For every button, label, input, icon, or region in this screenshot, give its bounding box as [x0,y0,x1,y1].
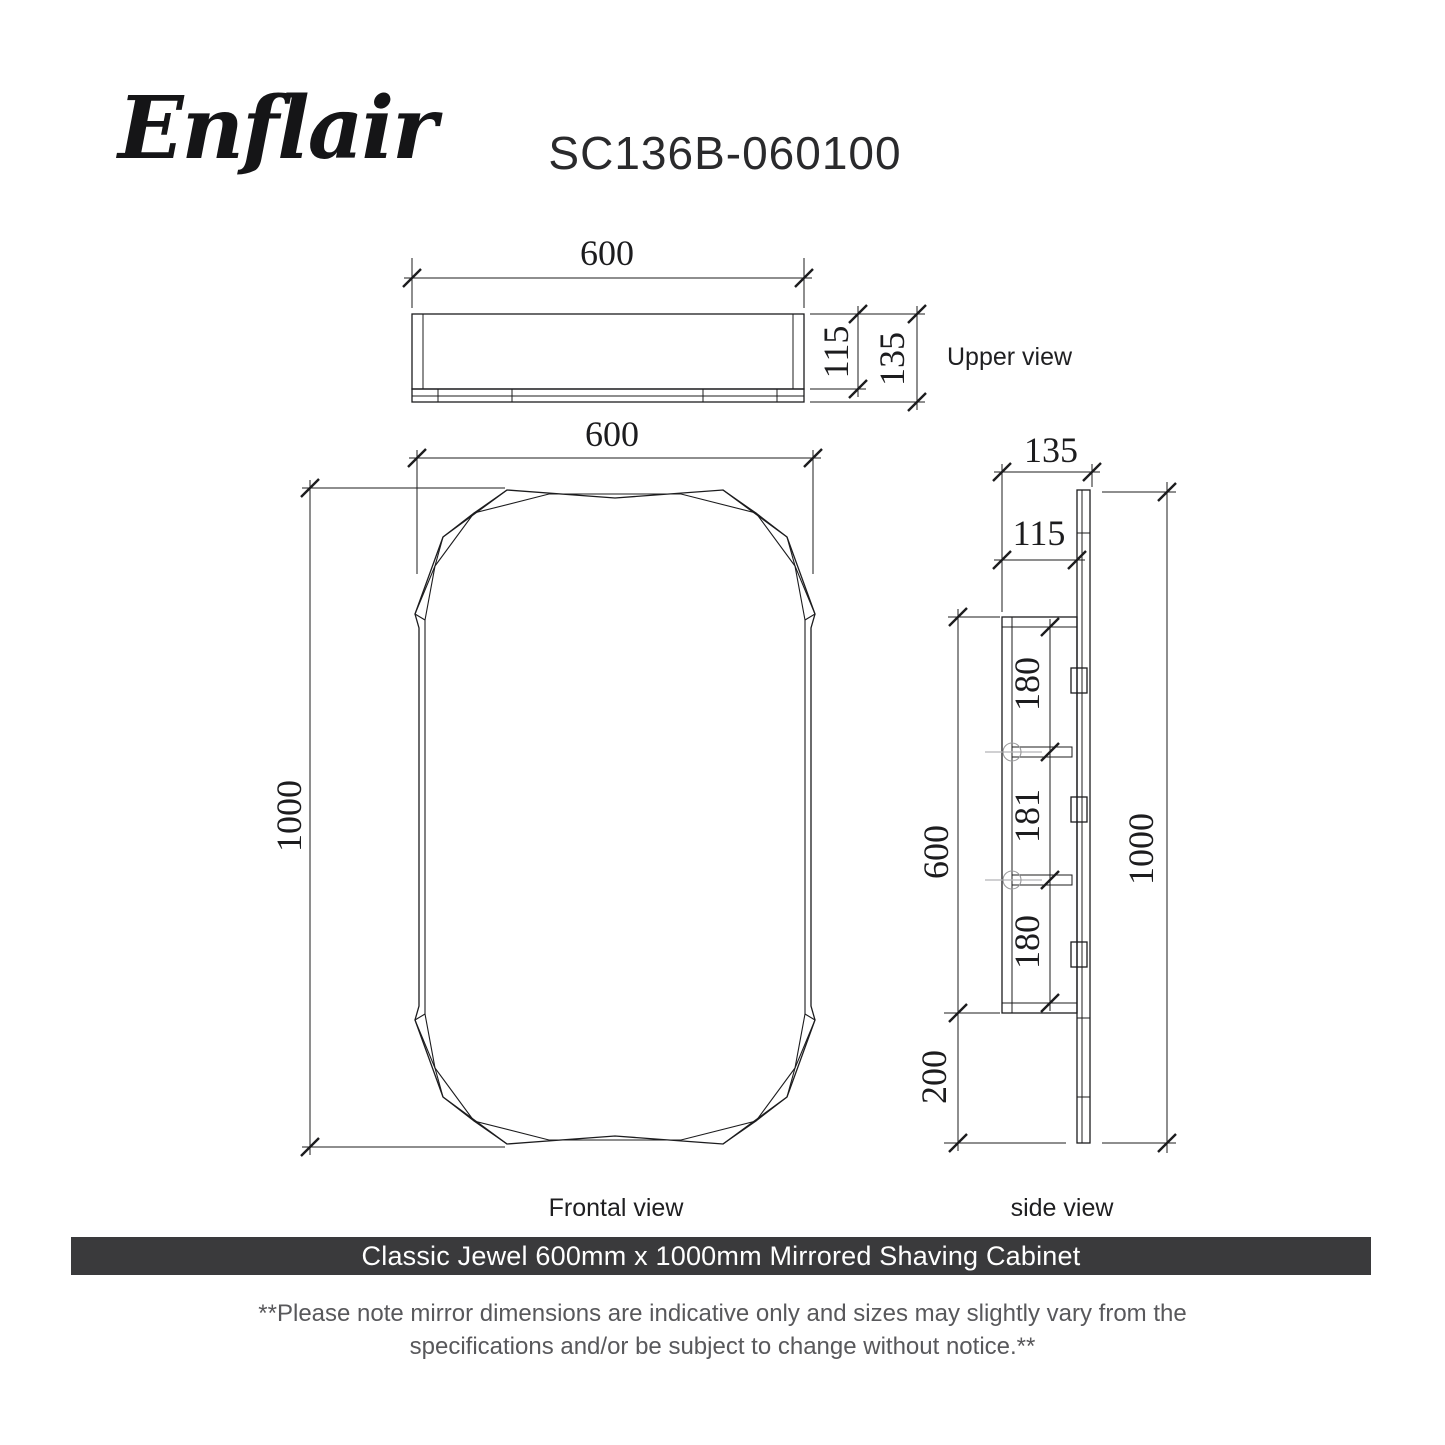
side-shelf-top-dimension: 180 [1007,657,1047,711]
upper-view-drawing: 600 115 135 [403,233,926,411]
side-body-height-dimension: 600 [916,825,956,879]
jewel-mirror-outline [415,490,815,1144]
mirror-clip [1071,797,1087,822]
technical-drawing: 600 115 135 [0,0,1445,1445]
disclaimer-note: **Please note mirror dimensions are indi… [60,1297,1385,1363]
upper-view-label: Upper view [947,343,1072,372]
upper-body-depth-dimension: 115 [816,326,856,379]
side-body-depth-dimension: 115 [1013,513,1066,553]
upper-mirror-strip [412,389,804,402]
side-shelf-bottom-dimension: 180 [1007,915,1047,969]
side-total-depth-dimension: 135 [1024,430,1078,470]
frontal-height-dimension: 1000 [269,780,309,852]
product-title: Classic Jewel 600mm x 1000mm Mirrored Sh… [362,1241,1081,1272]
upper-cabinet-outline [412,314,804,389]
frontal-view-drawing: 600 1000 [269,414,822,1156]
frontal-view-label: Frontal view [549,1194,684,1223]
upper-width-dimension: 600 [580,233,634,273]
side-dimension-ticks [949,463,1176,1152]
product-title-banner: Classic Jewel 600mm x 1000mm Mirrored Sh… [71,1237,1371,1275]
side-view-drawing: 135 115 180 181 180 600 200 1000 [914,430,1176,1153]
frontal-dimension-ticks [301,449,822,1156]
upper-total-depth-dimension: 135 [872,332,912,386]
disclaimer-line-1: **Please note mirror dimensions are indi… [60,1297,1385,1330]
side-view-label: side view [1011,1194,1114,1223]
product-spec-sheet: Enflair SC136B-060100 [0,0,1445,1445]
frontal-width-dimension: 600 [585,414,639,454]
side-shelf-middle-dimension: 181 [1007,789,1047,843]
mirror-clip [1071,668,1087,693]
side-bottom-offset-dimension: 200 [914,1050,954,1104]
disclaimer-line-2: specifications and/or be subject to chan… [60,1330,1385,1363]
frontal-dimension-lines [302,450,821,1155]
mirror-clip [1071,942,1087,967]
side-dimension-lines [944,464,1176,1153]
side-mirror-panel [1071,490,1090,1143]
side-total-height-dimension: 1000 [1121,813,1161,885]
